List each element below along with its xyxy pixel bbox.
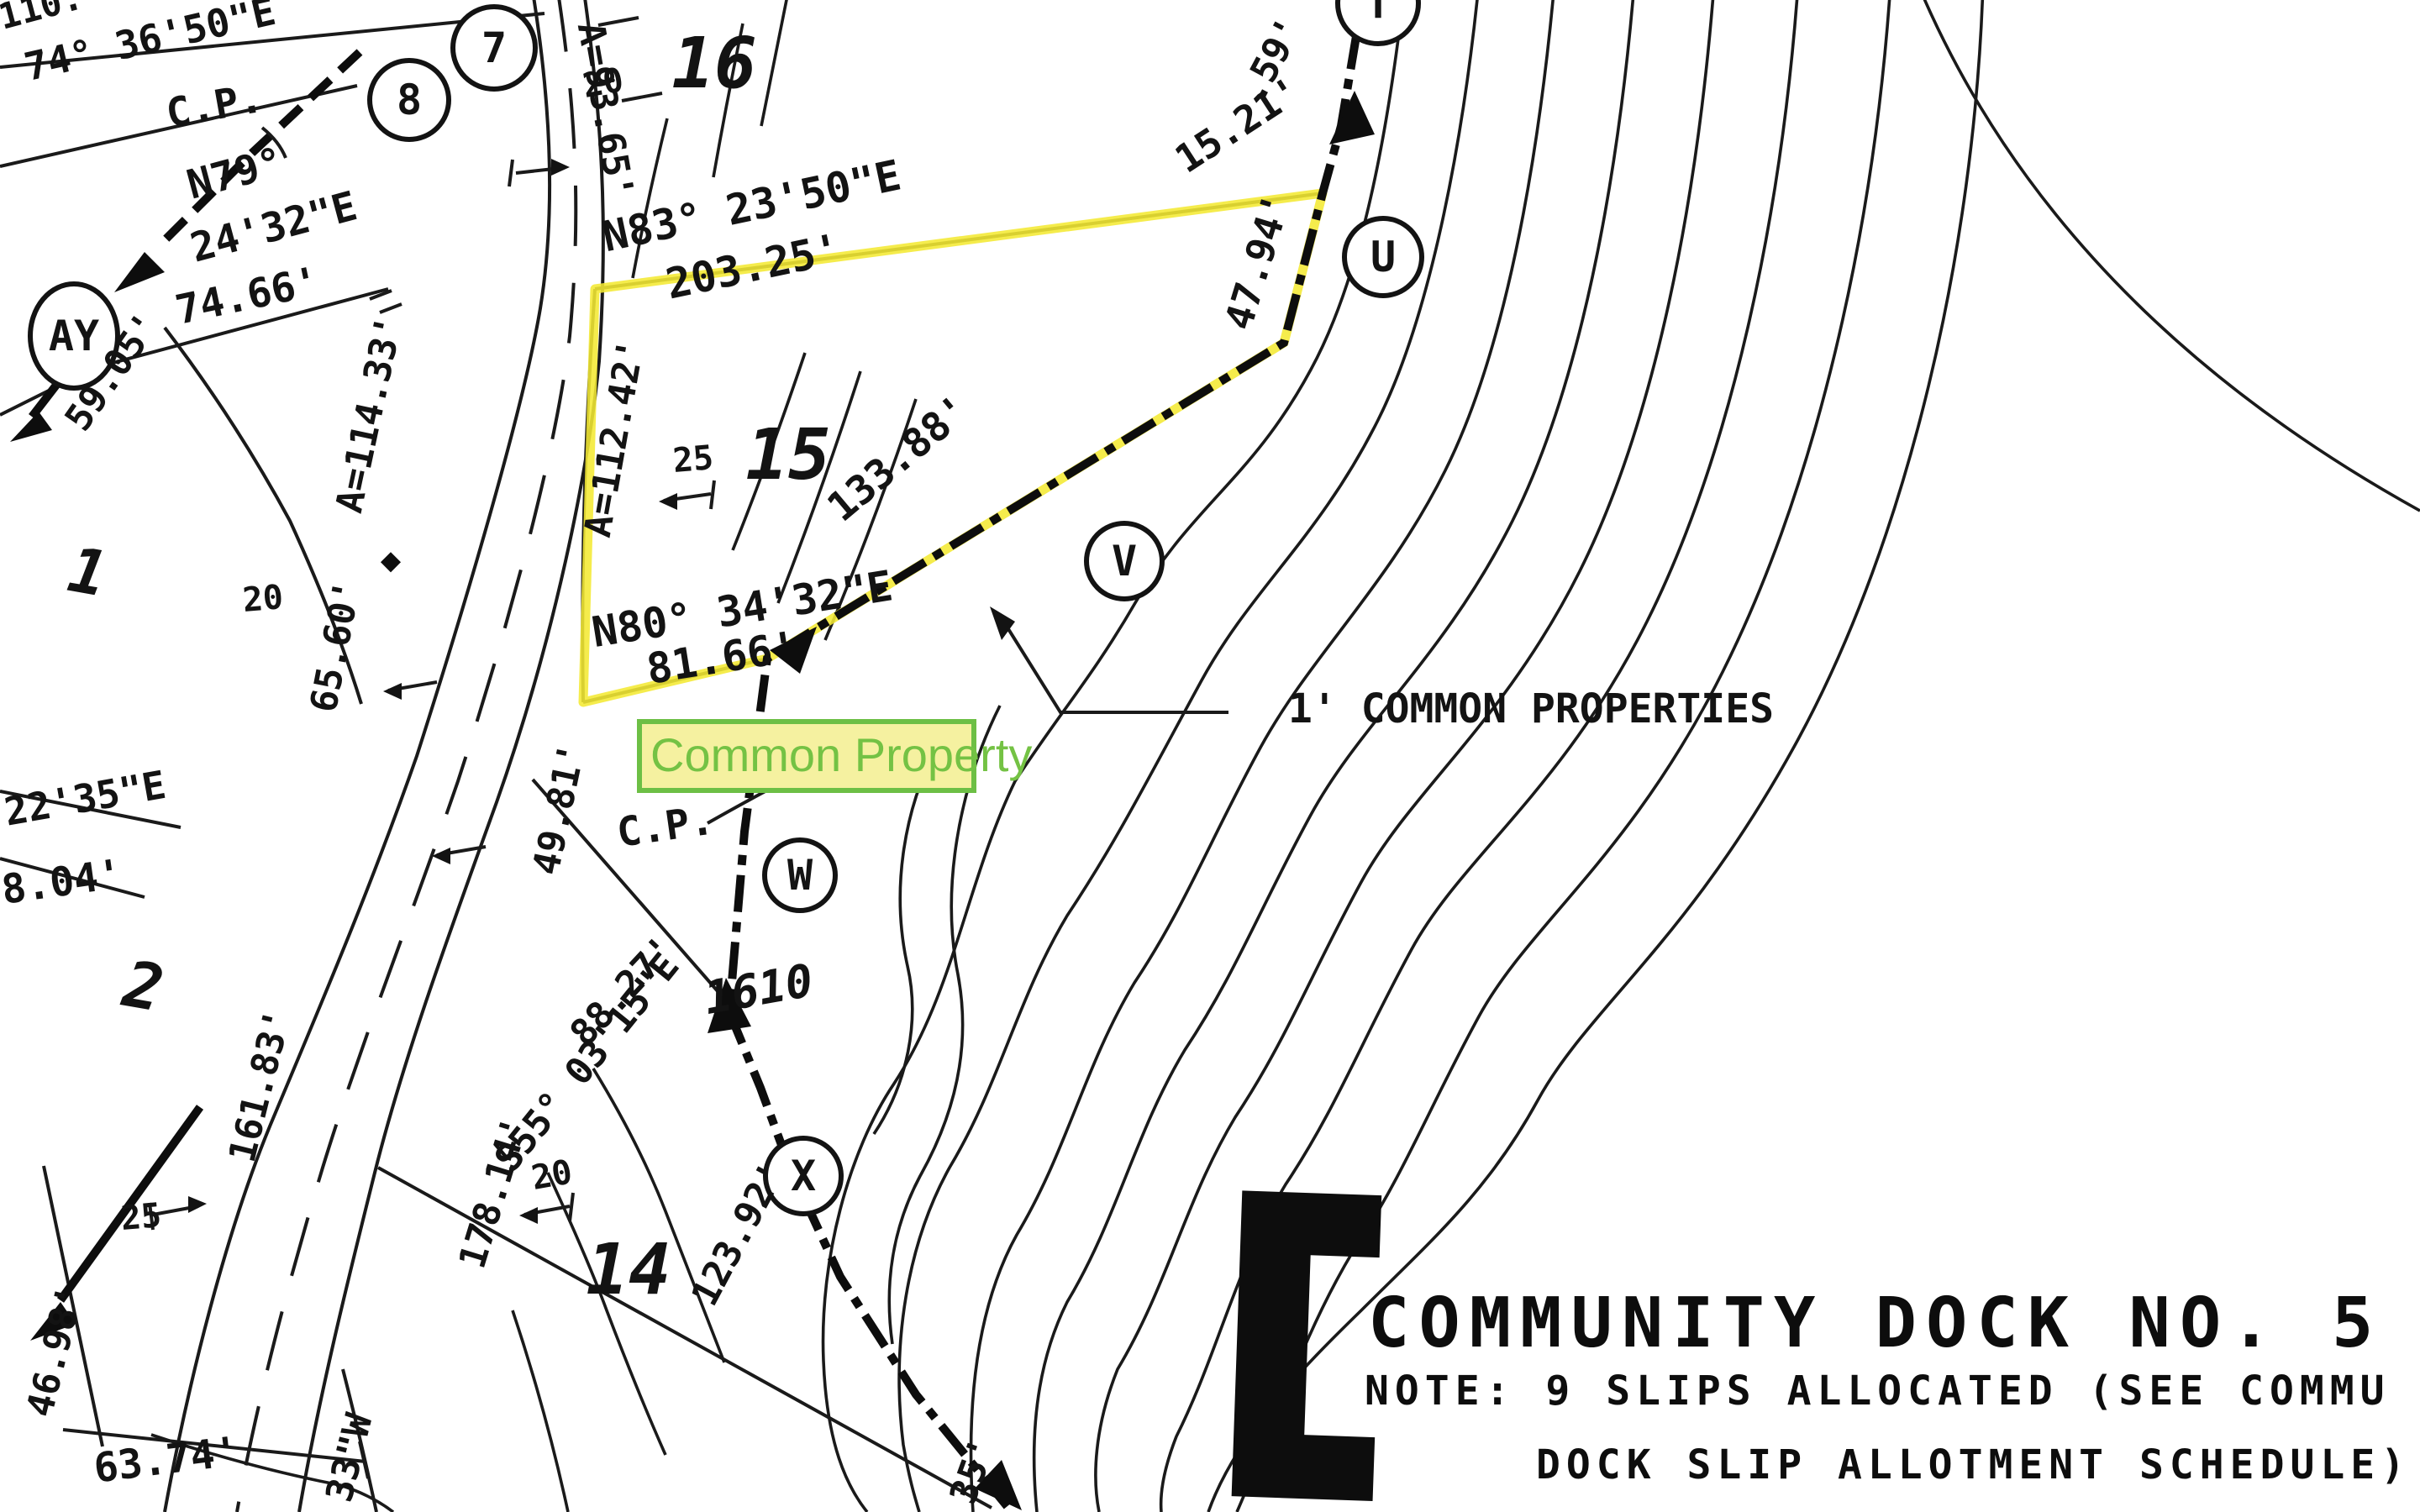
dim-20-left: 20 (241, 578, 285, 620)
dist-63-74: 63.74' (92, 1428, 242, 1493)
lot-circle-7-label: 7 (481, 24, 507, 72)
label-1610: 1610 (700, 953, 817, 1025)
lot-circle-8-label: 8 (397, 76, 422, 124)
dim-25-mid: 25 (671, 438, 715, 480)
title-community-dock: COMMUNITY DOCK NO. 5 (1368, 1284, 2382, 1363)
dist-8-04: 8.04' (0, 850, 125, 914)
lot-1: 1 (63, 533, 113, 611)
title-bracket (1232, 1190, 1384, 1501)
dim-110: 110. (0, 0, 87, 38)
vertex-circle-v-label: V (1112, 537, 1137, 585)
vertex-circle-t-label: T (1365, 0, 1391, 28)
lot-16: 16 (671, 22, 756, 104)
common-property-annotation[interactable]: Common Property (637, 719, 976, 793)
dist-123-92: 123.92' (683, 1155, 794, 1313)
note-1ft-common-properties: 1' COMMON PROPERTIES (1288, 685, 1774, 732)
plat-map-scan: 87TUVWXAY 110.74° 36'50"EC.P.N79°24'32"E… (0, 0, 2420, 1512)
common-property-annotation-label: Common Property (650, 728, 1032, 781)
road-name-bubble-label: AY (49, 312, 99, 360)
label-cp-lower: C.P. (614, 796, 717, 857)
lot-15: 15 (745, 413, 830, 496)
vertex-circle-x-label: X (791, 1152, 816, 1200)
dim-20-top: 20 (580, 60, 626, 106)
vertex-circle-w-label: W (787, 851, 813, 900)
lot-2: 2 (116, 946, 168, 1026)
bearing-n79: N79° (182, 139, 288, 209)
dist-49-81: 49.81' (524, 739, 594, 879)
arc-93-65: A=93.65' (569, 19, 642, 202)
lot-14: 14 (586, 1228, 671, 1310)
dist-133-88: 133.88' (818, 386, 979, 531)
bearing-22-35e: 22'35"E (1, 762, 169, 835)
label-cp-top: C.P. (162, 75, 266, 138)
monument-marker (381, 552, 401, 572)
boundary-arrowhead-top (1329, 91, 1375, 144)
note-line-1: NOTE: 9 SLIPS ALLOCATED (SEE COMMU (1365, 1368, 2391, 1415)
note-line-2: DOCK SLIP ALLOTMENT SCHEDULE) (1536, 1441, 2411, 1488)
vertex-circle-u-label: U (1370, 233, 1396, 281)
dist-74-66: 74.66' (171, 258, 324, 334)
common-properties-leader (1002, 618, 1228, 712)
dim-25-low: 25 (119, 1196, 163, 1238)
dim-20-low: 20 (529, 1152, 575, 1198)
arc-114-33: A=114.33' (328, 312, 411, 517)
